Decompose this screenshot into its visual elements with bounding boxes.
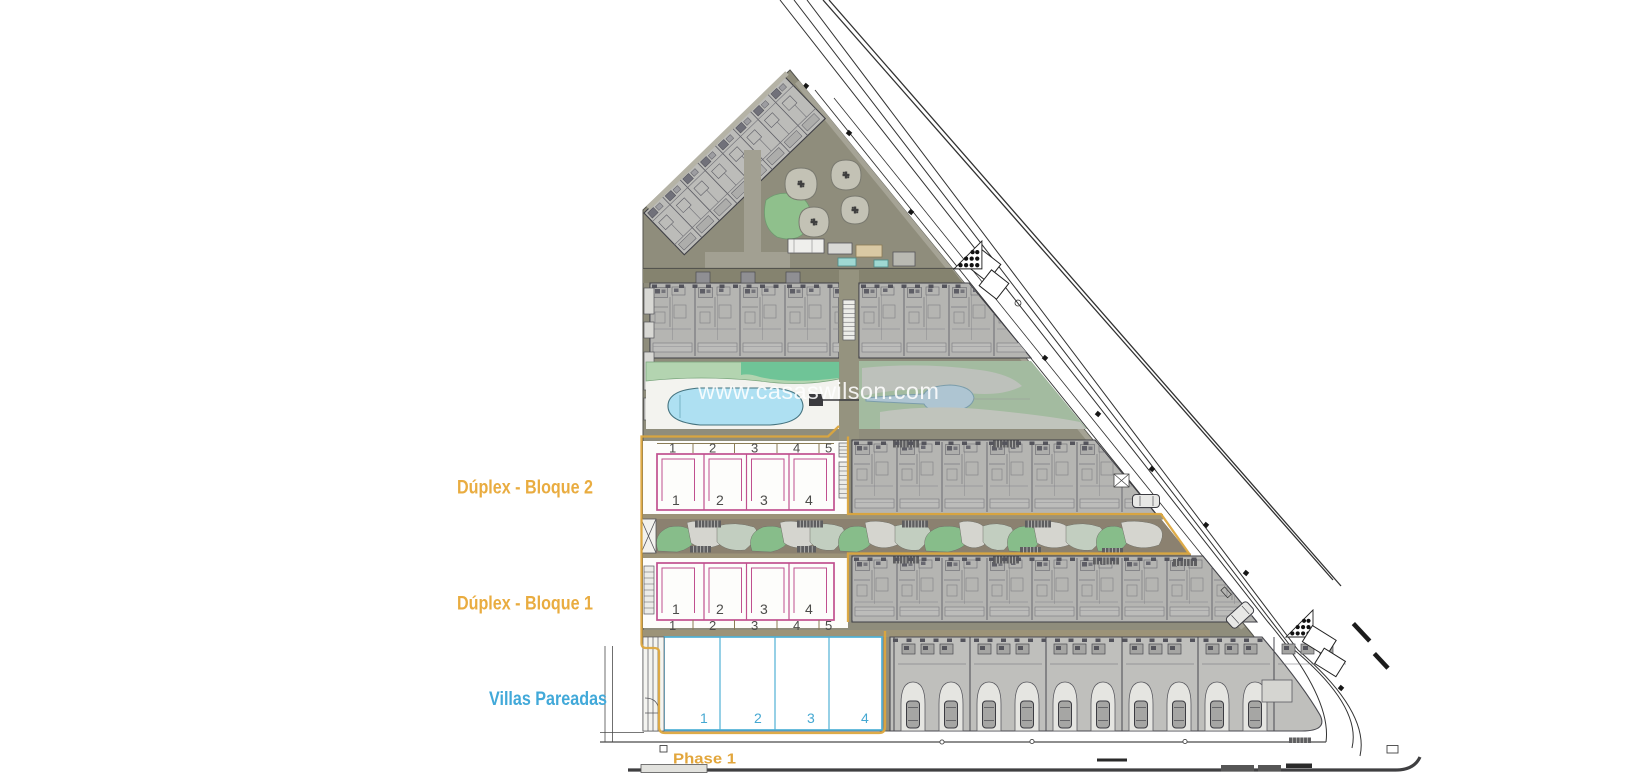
svg-text:2: 2: [716, 492, 724, 508]
svg-text:www.casaswilson.com: www.casaswilson.com: [697, 378, 939, 404]
svg-text:4: 4: [805, 492, 813, 508]
svg-text:3: 3: [760, 601, 768, 617]
svg-text:Dúplex - Bloque 2: Dúplex - Bloque 2: [457, 478, 593, 499]
svg-text:3: 3: [760, 492, 768, 508]
svg-text:Dúplex - Bloque 1: Dúplex - Bloque 1: [457, 594, 593, 615]
svg-text:4: 4: [861, 710, 869, 726]
svg-text:2: 2: [716, 601, 724, 617]
svg-text:1: 1: [700, 710, 708, 726]
svg-text:Villas Pareadas: Villas Pareadas: [489, 689, 607, 710]
svg-text:1: 1: [672, 492, 680, 508]
svg-text:3: 3: [807, 710, 815, 726]
svg-text:Phase 1: Phase 1: [673, 752, 736, 768]
svg-text:1: 1: [672, 601, 680, 617]
svg-text:4: 4: [805, 601, 813, 617]
svg-text:2: 2: [754, 710, 762, 726]
